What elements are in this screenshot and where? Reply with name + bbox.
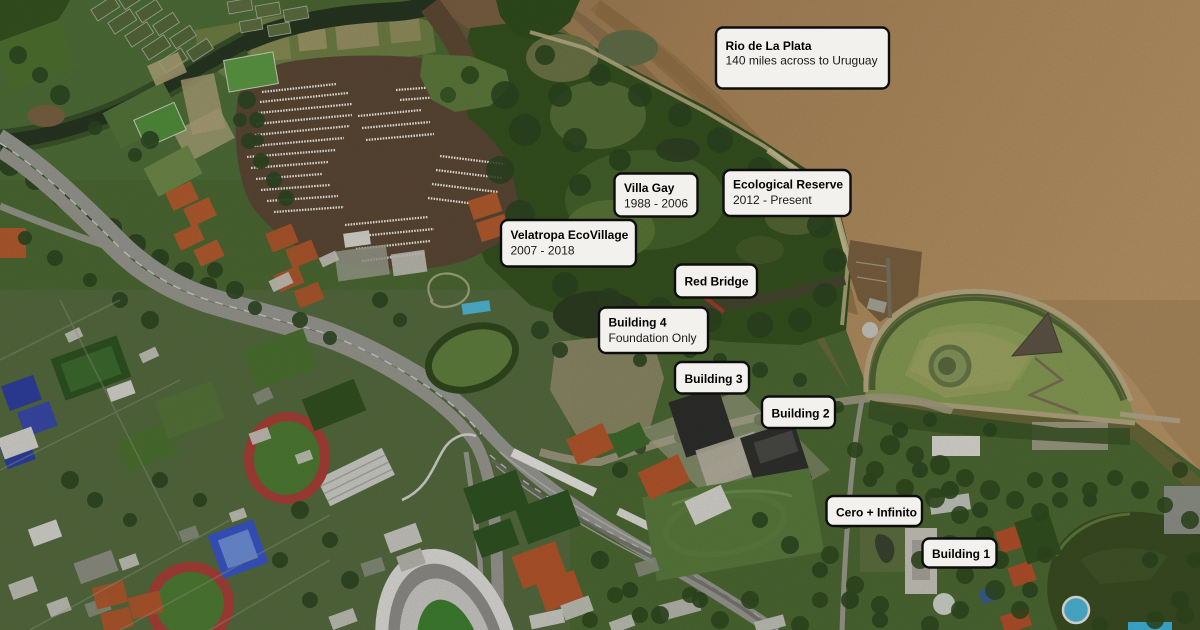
svg-text:Ecological Reserve: Ecological Reserve: [733, 178, 843, 192]
svg-text:Rio de La Plata: Rio de La Plata: [726, 39, 812, 53]
svg-text:Building 2: Building 2: [772, 407, 830, 421]
svg-text:2012 - Present: 2012 - Present: [733, 193, 812, 207]
svg-text:Villa Gay: Villa Gay: [624, 181, 675, 195]
svg-text:Velatropa EcoVillage: Velatropa EcoVillage: [511, 228, 629, 242]
svg-text:2007 - 2018: 2007 - 2018: [511, 244, 575, 258]
svg-text:Red Bridge: Red Bridge: [685, 275, 749, 289]
svg-text:Building 3: Building 3: [685, 372, 743, 386]
svg-text:Foundation Only: Foundation Only: [609, 331, 697, 345]
svg-text:Building 4: Building 4: [609, 316, 667, 330]
svg-text:140 miles across to Uruguay: 140 miles across to Uruguay: [726, 54, 878, 68]
svg-text:1988 - 2006: 1988 - 2006: [624, 197, 688, 211]
svg-text:Cero + Infinito: Cero + Infinito: [836, 506, 917, 520]
svg-text:Building 1: Building 1: [932, 547, 990, 561]
